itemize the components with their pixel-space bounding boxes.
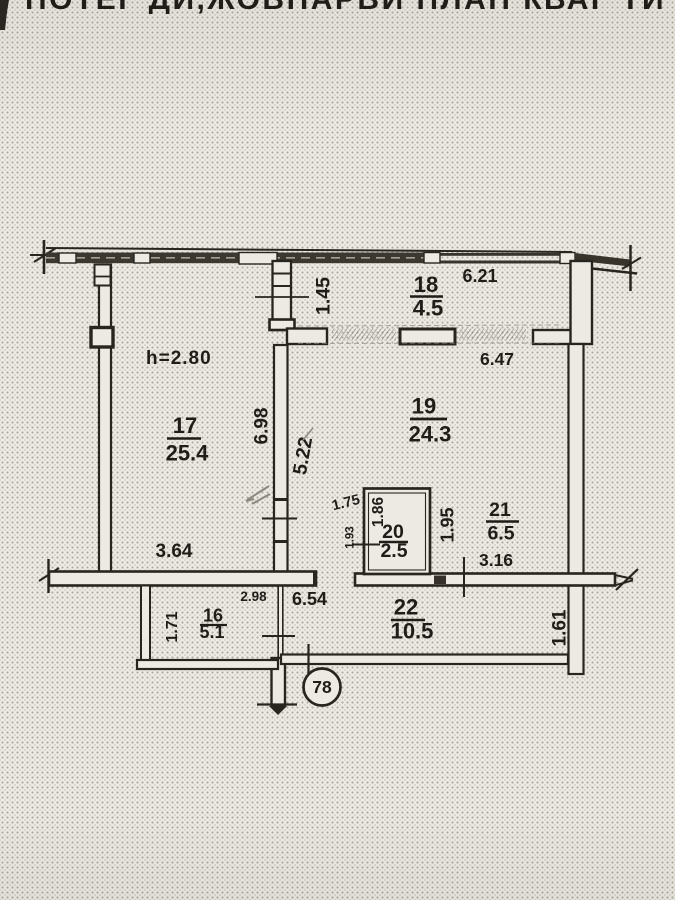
svg-text:1.45: 1.45 xyxy=(313,277,335,315)
svg-text:25.4: 25.4 xyxy=(166,441,210,466)
svg-text:4.5: 4.5 xyxy=(413,296,444,321)
svg-text:1.93: 1.93 xyxy=(345,526,357,548)
svg-text:1.75: 1.75 xyxy=(330,492,361,514)
svg-text:6.5: 6.5 xyxy=(487,523,514,545)
svg-text:6.47: 6.47 xyxy=(480,349,514,369)
svg-text:6.21: 6.21 xyxy=(462,266,497,286)
svg-text:17: 17 xyxy=(173,413,197,438)
svg-text:22: 22 xyxy=(394,595,418,620)
svg-text:18: 18 xyxy=(414,272,438,297)
svg-text:1.71: 1.71 xyxy=(164,611,181,642)
svg-text:2.5: 2.5 xyxy=(380,540,407,562)
svg-text:3.16: 3.16 xyxy=(479,550,513,570)
svg-text:6.54: 6.54 xyxy=(292,589,327,609)
svg-text:h=2.80: h=2.80 xyxy=(146,348,212,369)
svg-text:5.1: 5.1 xyxy=(199,622,224,642)
svg-text:21: 21 xyxy=(489,499,511,521)
svg-text:6.98: 6.98 xyxy=(252,408,273,445)
svg-text:1.61: 1.61 xyxy=(550,609,571,646)
svg-text:19: 19 xyxy=(412,394,436,419)
svg-text:2.98: 2.98 xyxy=(240,589,267,604)
svg-text:10.5: 10.5 xyxy=(391,619,434,644)
svg-text:78: 78 xyxy=(312,677,332,697)
svg-text:3.64: 3.64 xyxy=(156,541,193,562)
svg-text:24.3: 24.3 xyxy=(409,422,452,447)
svg-text:5.22: 5.22 xyxy=(289,435,317,476)
svg-text:ПОТЕГ ДИ,ЖОВНАРВИ ПЛАН КВАГ ТИ: ПОТЕГ ДИ,ЖОВНАРВИ ПЛАН КВАГ ТИ xyxy=(25,0,666,16)
svg-text:1.95: 1.95 xyxy=(438,507,458,542)
